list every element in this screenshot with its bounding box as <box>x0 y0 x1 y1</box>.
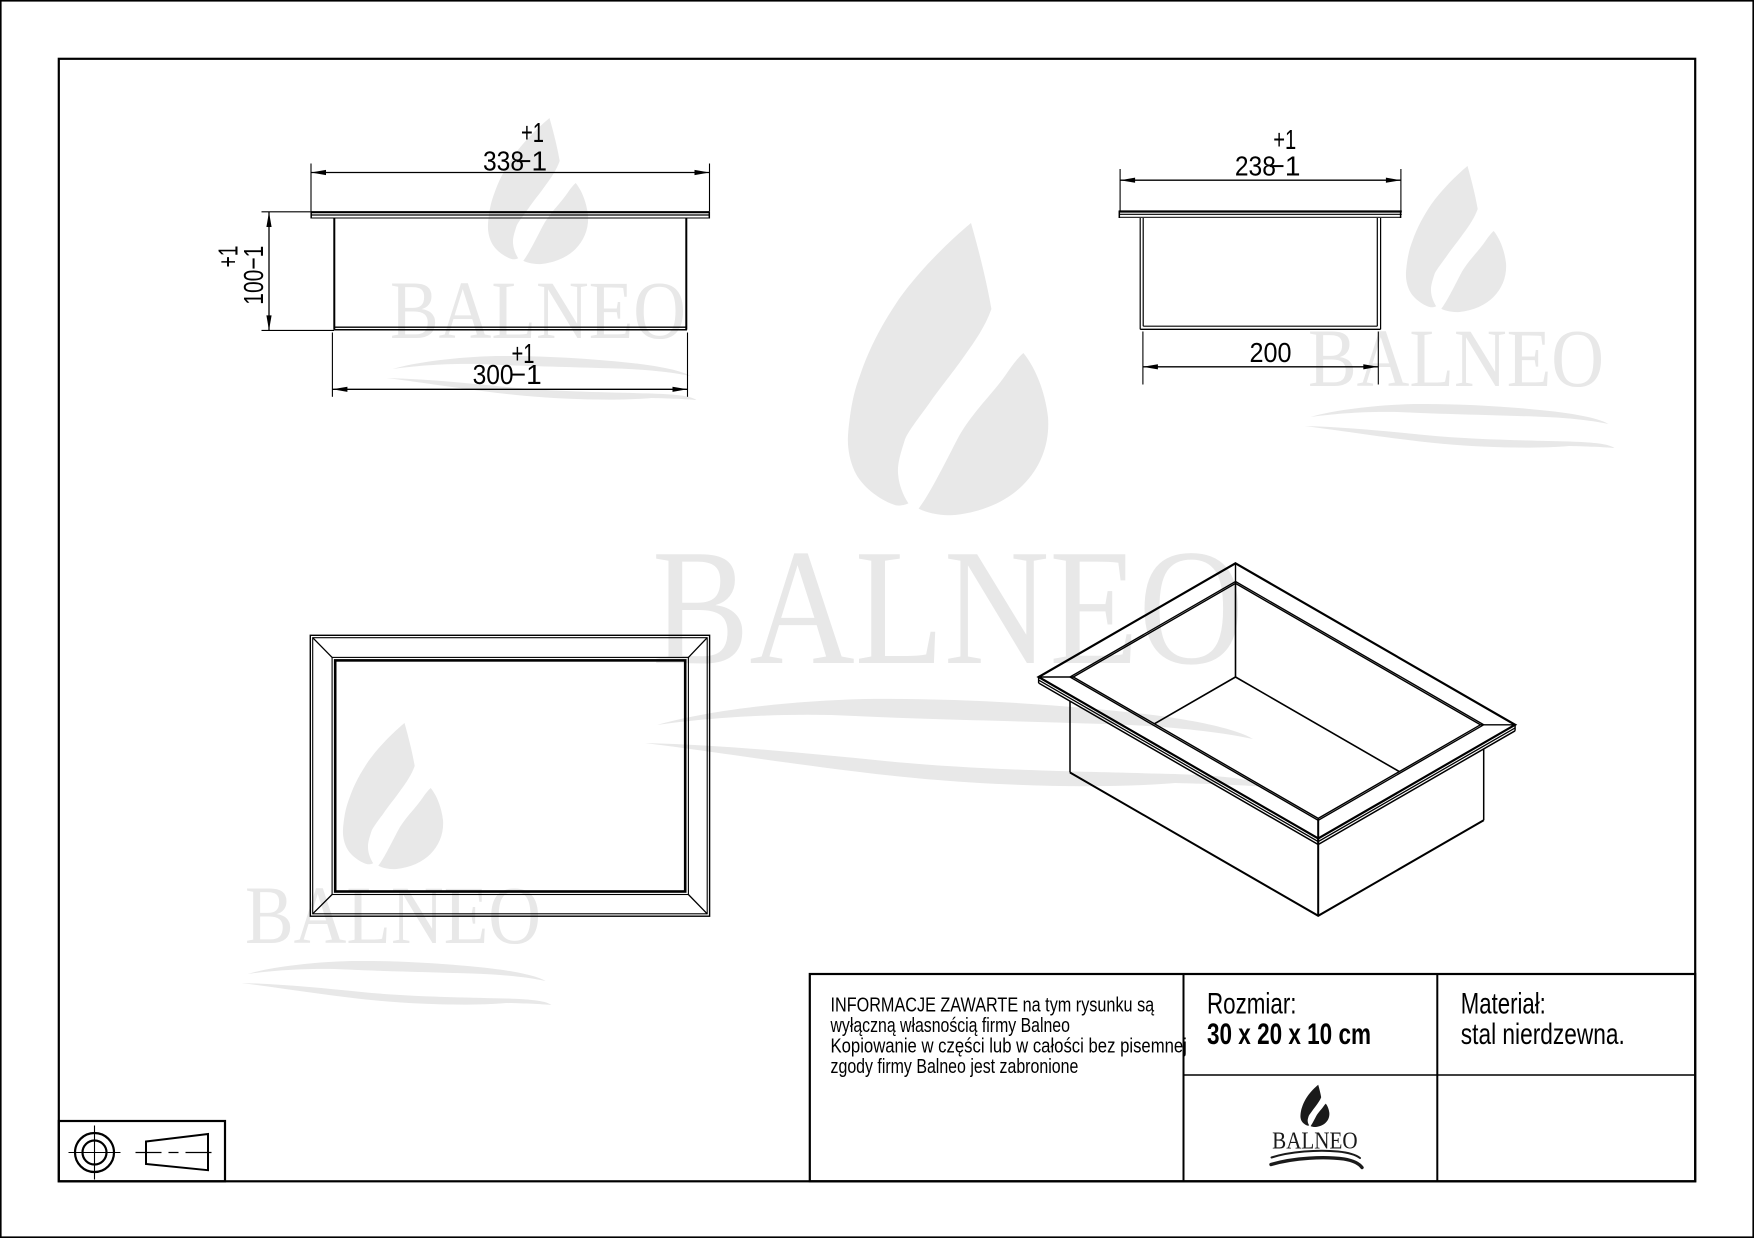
svg-text:zgody firmy Balneo jest zabron: zgody firmy Balneo jest zabronione <box>831 1055 1079 1078</box>
svg-text:stal nierdzewna.: stal nierdzewna. <box>1461 1018 1625 1051</box>
svg-text:+1: +1 <box>1273 124 1296 155</box>
svg-text:wyłączną własnością firmy Baln: wyłączną własnością firmy Balneo <box>830 1014 1070 1037</box>
svg-text:30 x 20 x 10 cm: 30 x 20 x 10 cm <box>1207 1018 1371 1051</box>
svg-text:Kopiowanie w części lub w cało: Kopiowanie w części lub w całości bez pi… <box>831 1035 1187 1058</box>
svg-text:BALNEO: BALNEO <box>652 515 1244 699</box>
svg-text:+1: +1 <box>213 246 244 268</box>
svg-text:INFORMACJE ZAWARTE na tym rysu: INFORMACJE ZAWARTE na tym rysunku są <box>831 993 1155 1016</box>
svg-text:+1: +1 <box>512 338 535 369</box>
svg-text:200: 200 <box>1250 337 1292 368</box>
svg-text:300: 300 <box>473 359 514 390</box>
svg-text:Materiał:: Materiał: <box>1461 987 1546 1020</box>
svg-text:BALNEO: BALNEO <box>390 264 686 356</box>
svg-text:+1: +1 <box>521 117 544 148</box>
svg-text:Rozmiar:: Rozmiar: <box>1207 988 1297 1021</box>
svg-text:−1: −1 <box>515 146 547 177</box>
svg-text:BALNEO: BALNEO <box>245 869 541 961</box>
svg-text:−1: −1 <box>1269 151 1301 182</box>
